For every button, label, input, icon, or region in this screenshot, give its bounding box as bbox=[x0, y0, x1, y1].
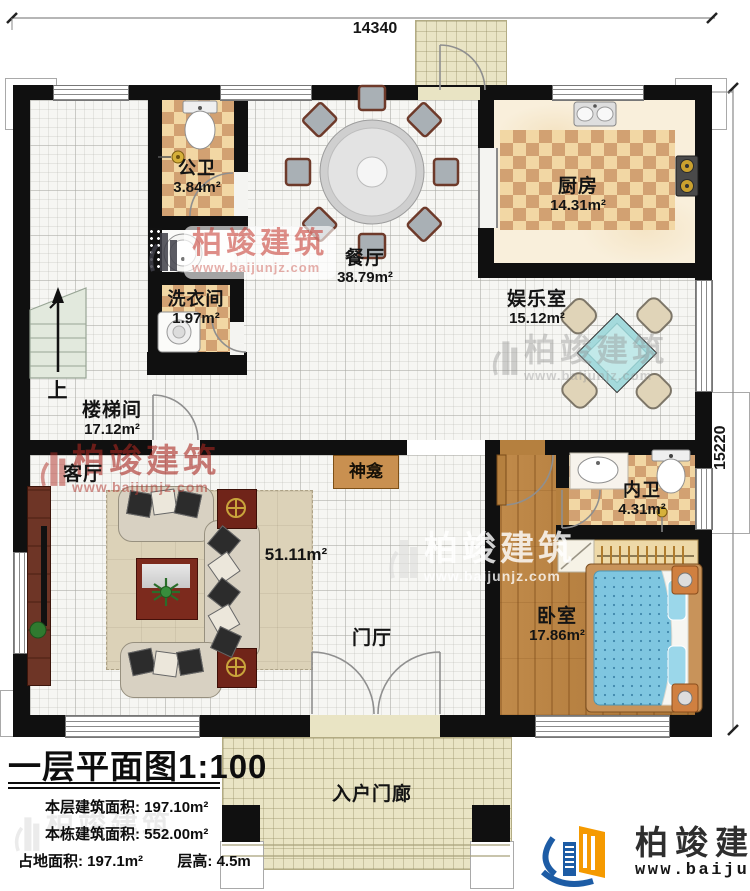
wall-living-divider bbox=[13, 440, 407, 455]
door-opening-public-bath bbox=[234, 172, 248, 216]
wall-inner-bath-bottom bbox=[556, 525, 712, 540]
floor-plan-page: { "dimensions": { "top": "14340", "right… bbox=[0, 0, 750, 891]
alcove-cabinet bbox=[148, 228, 162, 272]
wall-inner-bath-left bbox=[556, 455, 569, 488]
dimension-right-value: 15220 bbox=[712, 394, 730, 470]
floor-area-value: 197.10m² bbox=[144, 799, 208, 816]
wall-bedroom-left bbox=[485, 440, 500, 715]
living-area-label: 51.11m² bbox=[258, 546, 334, 563]
sofa-cushion bbox=[152, 650, 179, 677]
room-label-living: 客厅 bbox=[58, 464, 108, 485]
tv-cabinet bbox=[27, 486, 51, 686]
room-label-inner-bath: 内卫 4.31m² bbox=[610, 480, 674, 518]
dimension-top-value: 14340 bbox=[338, 20, 412, 38]
sofa-cushion bbox=[174, 490, 202, 518]
shrine-label: 神龛 bbox=[349, 462, 383, 481]
company-logo-icon bbox=[535, 818, 627, 888]
tv-screen bbox=[41, 526, 47, 626]
company-logo: 柏竣建筑 www.baijunjz.com bbox=[535, 818, 750, 888]
footprint-value: 197.1m² bbox=[87, 853, 143, 870]
story-height-label: 层高: bbox=[177, 853, 212, 870]
door-opening-main-entrance bbox=[310, 715, 440, 737]
footprint-line: 占地面积: 197.1m² 层高: 4.5m bbox=[18, 850, 251, 871]
room-label-stairwell: 楼梯间 17.12m² bbox=[77, 400, 147, 438]
floor-sink-alcove bbox=[162, 230, 234, 272]
story-height-value: 4.5m bbox=[217, 853, 251, 870]
total-area-line: 本栋建筑面积: 552.00m² bbox=[45, 823, 208, 844]
room-label-dining: 餐厅 38.79m² bbox=[320, 248, 410, 286]
room-label-kitchen: 厨房 14.31m² bbox=[538, 176, 618, 214]
sofa-cushion bbox=[126, 490, 154, 518]
floor-plan: 神龛 bbox=[0, 0, 750, 891]
room-label-entertainment: 娱乐室 15.12m² bbox=[495, 289, 579, 327]
door-opening-kitchen-slider bbox=[478, 148, 498, 228]
porch-column-right bbox=[472, 805, 510, 842]
coffee-table-top bbox=[142, 564, 190, 588]
plan-title: 一层平面图1:100 bbox=[8, 740, 267, 788]
room-label-bedroom: 卧室 17.86m² bbox=[524, 606, 590, 644]
wall-kitchen-bottom bbox=[478, 263, 712, 278]
wall-bath-left bbox=[148, 100, 162, 230]
room-label-public-bath: 公卫 3.84m² bbox=[165, 158, 229, 196]
room-label-entry-porch: 入户门廊 bbox=[322, 784, 422, 805]
window-bottom-bedroom bbox=[535, 715, 670, 738]
wall-right bbox=[695, 85, 712, 737]
wall-bath-right bbox=[234, 100, 248, 172]
sofa-cushion bbox=[176, 648, 204, 676]
floor-area-label: 本层建筑面积: bbox=[45, 799, 140, 816]
total-area-label: 本栋建筑面积: bbox=[45, 826, 140, 843]
window-top-stairwell bbox=[53, 85, 129, 101]
window-bottom-living bbox=[65, 715, 200, 738]
side-table-top bbox=[217, 489, 257, 529]
logo-brand-text: 柏竣建筑 bbox=[635, 826, 750, 861]
door-opening-bedroom bbox=[500, 440, 545, 455]
title-underline bbox=[8, 782, 220, 789]
window-right-entertainment bbox=[695, 280, 713, 392]
shrine-cabinet: 神龛 bbox=[333, 455, 399, 489]
logo-url-text: www.baijunjz.com bbox=[635, 861, 750, 880]
window-right-inner-bath bbox=[695, 468, 713, 530]
footprint-label: 占地面积: bbox=[18, 853, 83, 870]
door-opening-back-porch bbox=[418, 87, 480, 100]
window-top-dining bbox=[220, 85, 312, 101]
room-label-laundry: 洗衣间 1.97m² bbox=[158, 289, 234, 327]
window-top-kitchen bbox=[552, 85, 644, 101]
wall-bath-bottom bbox=[148, 216, 248, 230]
porch-column-left bbox=[222, 805, 260, 842]
wall-laundry-bottom bbox=[147, 352, 247, 375]
floor-area-line: 本层建筑面积: 197.10m² bbox=[45, 796, 208, 817]
door-opening-stairhall bbox=[152, 440, 200, 455]
porch-column-base-right bbox=[470, 841, 514, 889]
room-label-foyer: 门厅 bbox=[344, 628, 400, 649]
door-opening-inner-bath bbox=[556, 488, 569, 525]
total-area-value: 552.00m² bbox=[144, 826, 208, 843]
back-porch-area bbox=[415, 20, 507, 87]
stairs-up-label: 上 bbox=[45, 381, 71, 402]
